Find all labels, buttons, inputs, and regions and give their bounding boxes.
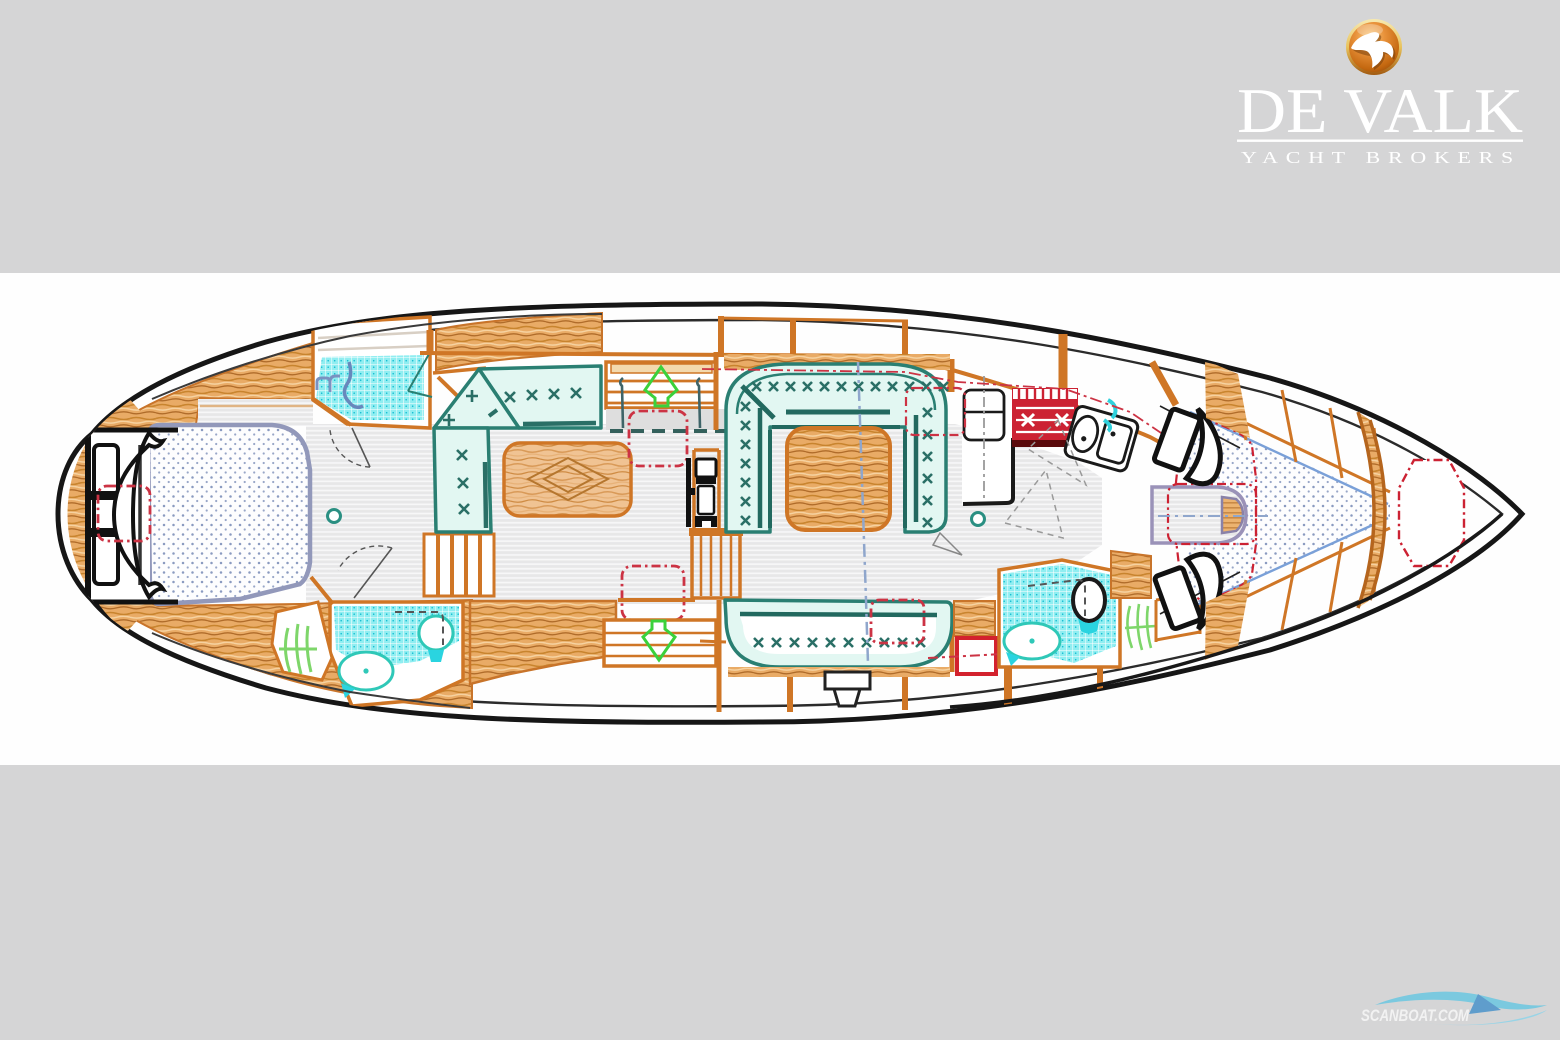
svg-text:SCANBOAT.COM: SCANBOAT.COM: [1361, 1006, 1470, 1025]
svg-text:YACHT BROKERS: YACHT BROKERS: [1241, 148, 1521, 167]
svg-text:DE VALK: DE VALK: [1237, 75, 1523, 146]
